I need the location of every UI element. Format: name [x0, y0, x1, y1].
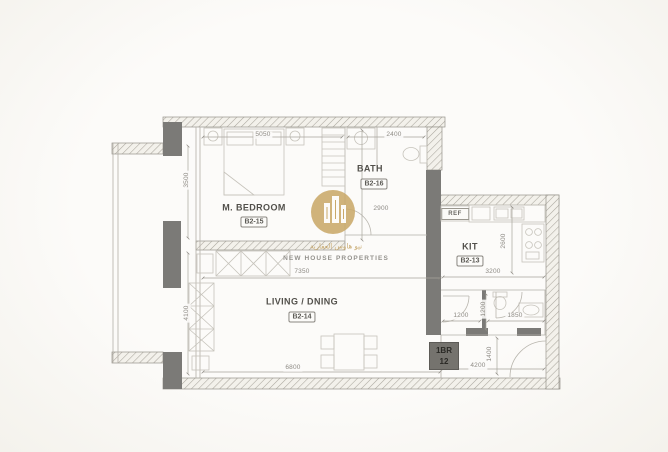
bed: [224, 129, 284, 195]
room-label-bath: BATH: [357, 165, 383, 174]
nightstand-left: [204, 128, 222, 145]
wall-bath-right: [427, 127, 442, 170]
unit-badge-type: 1BR: [430, 346, 458, 357]
sofa-top: [216, 251, 290, 276]
dim-kitchen-depth: 2600: [501, 231, 508, 250]
kitchen-hob: [522, 224, 544, 262]
dim-living-width-lower: 6800: [283, 365, 302, 372]
side-table-top: [197, 254, 213, 273]
wc-toilet: [493, 292, 507, 310]
floor-plan-canvas: 5050 2400 3500 4100 2900 7350 6800 2600 …: [0, 0, 668, 452]
column-balcony-bottom: [163, 352, 182, 389]
wall-top: [163, 117, 445, 127]
watermark-arabic-text: نيو هاوس العقارية: [310, 244, 362, 251]
wall-balcony-top: [112, 143, 163, 154]
room-code-bedroom: B2-15: [240, 217, 267, 228]
dim-hall-width: 1200: [451, 313, 470, 320]
dim-living-depth: 4100: [184, 303, 191, 322]
room-label-kitchen: KIT: [462, 243, 478, 252]
bath-toilet: [403, 146, 427, 163]
room-code-living: B2-14: [288, 312, 315, 323]
dim-bedroom-depth: 3500: [184, 170, 191, 189]
wall-right: [546, 195, 559, 389]
fridge-label: REF: [441, 208, 469, 220]
room-code-kitchen: B2-13: [456, 256, 483, 267]
wall-balcony-bottom: [112, 352, 163, 363]
dim-wc-width: 1850: [505, 313, 524, 320]
unit-badge: 1BR 12: [429, 342, 459, 370]
room-code-bath: B2-16: [360, 179, 387, 190]
side-table-bottom: [192, 356, 209, 370]
wall-kitchen-top: [440, 195, 559, 205]
watermark-company-name: NEW HOUSE PROPERTIES: [283, 256, 389, 263]
wall-dark-vertical: [426, 170, 441, 335]
dim-kitchen-width: 3200: [483, 269, 502, 276]
kitchen-counter: [469, 205, 545, 222]
floor-plan-drawing: [0, 0, 668, 452]
dim-entry-width: 4200: [468, 363, 487, 370]
wall-bottom: [163, 378, 560, 389]
dim-bedroom-width: 5050: [253, 132, 272, 139]
dim-entry-depth: 1400: [487, 344, 494, 363]
entry-door: [510, 341, 546, 377]
watermark-logo: [311, 190, 355, 234]
dim-bath-width: 2400: [384, 132, 403, 139]
dim-hall-depth: 1200: [481, 299, 488, 318]
column-balcony-mid: [163, 221, 181, 288]
dim-bath-corridor-depth: 2900: [371, 206, 390, 213]
sofa-left: [189, 283, 214, 351]
nightstand-right: [286, 128, 304, 145]
room-label-living: LIVING / DNING: [266, 298, 338, 307]
unit-badge-number: 12: [430, 357, 458, 368]
bath-sink: [347, 128, 375, 149]
column-balcony-top: [163, 122, 182, 156]
dim-living-width-upper: 7350: [292, 269, 311, 276]
room-label-bedroom: M. BEDROOM: [222, 204, 286, 213]
dining-set: [321, 334, 377, 370]
